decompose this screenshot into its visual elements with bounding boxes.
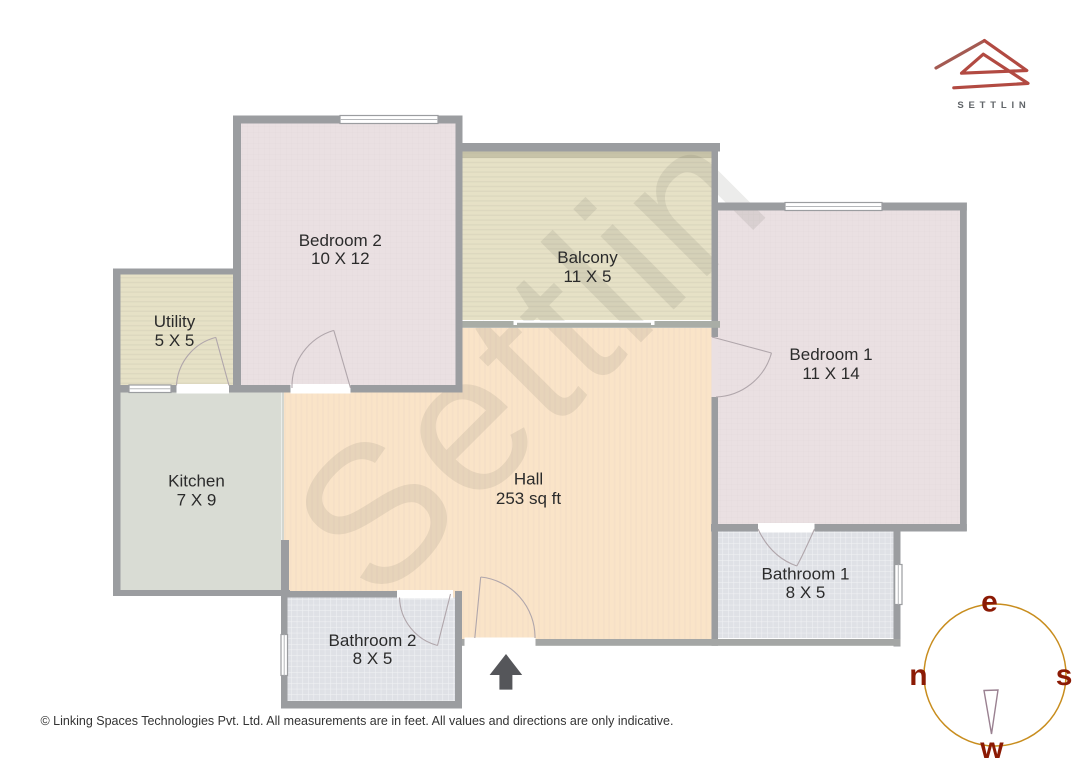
- svg-text:8 X 5: 8 X 5: [786, 583, 826, 602]
- svg-text:Bedroom 1: Bedroom 1: [789, 345, 872, 364]
- svg-text:Kitchen: Kitchen: [168, 472, 225, 491]
- svg-text:Hall: Hall: [514, 470, 543, 489]
- svg-text:8 X 5: 8 X 5: [353, 649, 393, 668]
- svg-text:e: e: [981, 586, 998, 619]
- svg-text:7 X 9: 7 X 9: [177, 491, 217, 510]
- svg-text:Bathroom 2: Bathroom 2: [329, 631, 417, 650]
- svg-text:w: w: [979, 732, 1004, 764]
- svg-text:Utility: Utility: [154, 312, 196, 331]
- svg-text:10 X 12: 10 X 12: [311, 249, 370, 268]
- svg-text:253 sq ft: 253 sq ft: [496, 489, 561, 508]
- svg-text:5 X 5: 5 X 5: [155, 331, 195, 350]
- svg-text:11 X 14: 11 X 14: [802, 364, 859, 383]
- svg-text:© Linking Spaces Technologies: © Linking Spaces Technologies Pvt. Ltd. …: [41, 714, 674, 728]
- svg-text:SETTLIN: SETTLIN: [957, 100, 1030, 111]
- svg-text:11 X 5: 11 X 5: [564, 267, 612, 286]
- svg-text:Bathroom 1: Bathroom 1: [762, 565, 850, 584]
- svg-text:Balcony: Balcony: [557, 248, 618, 267]
- svg-text:n: n: [909, 659, 927, 692]
- svg-text:Bedroom 2: Bedroom 2: [299, 231, 382, 250]
- svg-text:s: s: [1056, 659, 1073, 692]
